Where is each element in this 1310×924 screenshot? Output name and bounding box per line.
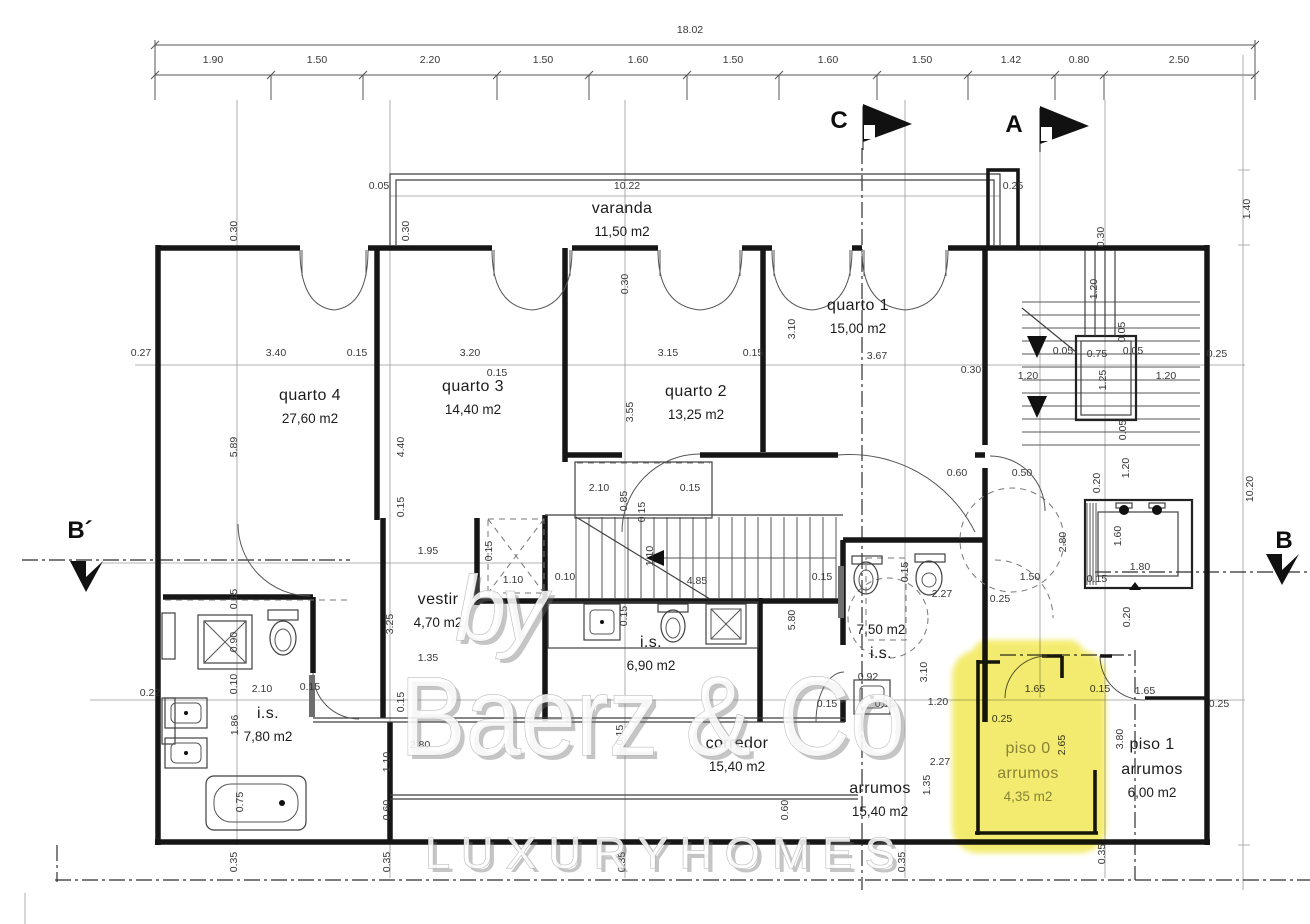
dimension-label: 3.25 [384, 614, 396, 635]
dimension-label: 5.89 [228, 437, 240, 458]
dimension-label: 1.20 [928, 696, 949, 708]
dimension-label: 2.10 [589, 482, 610, 494]
dimension-label: 0.35 [228, 852, 240, 873]
dimension-label: 0.05 [369, 180, 390, 192]
dimension-label: 0.50 [1012, 467, 1033, 479]
dimension-label: 1.10 [381, 752, 393, 773]
dimension-label: 1.20 [1088, 279, 1100, 300]
dimension-label: 4.85 [687, 575, 708, 587]
dimension-label: 0.85 [618, 491, 630, 512]
dimension-label: 0.05 [1116, 322, 1128, 343]
dimension-label: 2.27 [932, 588, 953, 600]
dimension-label: 2.80 [1057, 532, 1069, 553]
dimension-label: 1.10 [644, 546, 656, 567]
section-letter: C [830, 107, 847, 134]
dimension-label: 0.75 [234, 792, 246, 813]
toilet-icon [661, 610, 685, 642]
dimension-label: 1.60 [1112, 526, 1124, 547]
dimension-label: 10.20 [1244, 476, 1256, 502]
dimension-label: 0.15 [395, 497, 407, 518]
dimension-label: 3.40 [266, 347, 287, 359]
room-varanda-name: varanda [592, 200, 653, 217]
dimension-label: 2.27 [930, 756, 951, 768]
dimension-label: 2.20 [420, 54, 441, 66]
dimension-label: 0.30 [1095, 227, 1107, 248]
dimension-label: 18.02 [677, 24, 703, 36]
dimension-label: 5.80 [786, 610, 798, 631]
elevator-roller-icon [1152, 505, 1162, 515]
dimension-label: 1.50 [307, 54, 328, 66]
room-piso-1-arrumos-name: arrumos [1121, 761, 1182, 778]
dimension-label: 1.20 [1156, 370, 1177, 382]
dimension-label: 1.50 [533, 54, 554, 66]
dimension-label: 1.50 [723, 54, 744, 66]
dimension-label: 0.15 [743, 347, 764, 359]
dimension-label: 0.30 [228, 221, 240, 242]
dimension-label: 1.42 [1001, 54, 1022, 66]
section-marker-b-left: B´ [67, 517, 103, 592]
dimension-label: 1.95 [418, 545, 439, 557]
dimension-label: 0.25 [1209, 698, 1230, 710]
watermark-tagline: L U X U R Y H O M E S [425, 829, 895, 878]
dimension-label: 1.60 [818, 54, 839, 66]
dimension-label: 0.60 [947, 467, 968, 479]
dimension-label: 1.65 [1135, 685, 1156, 697]
dimension-label: 0.15 [812, 571, 833, 583]
dimension-label: 1.86 [229, 715, 241, 736]
dimension-label: 0.22 [140, 687, 161, 699]
section-letter: B´ [67, 517, 92, 544]
dimension-label: 4.40 [395, 437, 407, 458]
room-i-s--area: 7,80 m2 [244, 729, 293, 744]
dimension-label: 0.35 [1096, 844, 1108, 865]
dimension-label: 3.20 [460, 347, 481, 359]
room-quarto-4-area: 27,60 m2 [282, 411, 338, 426]
dimension-label: 1.35 [921, 775, 933, 796]
elevator-roller-icon [1119, 505, 1129, 515]
stair-arrow-lower [1027, 396, 1047, 418]
room-quarto-3-name: quarto 3 [442, 378, 504, 395]
dimension-label: 3.55 [624, 402, 636, 423]
balcony-outline [390, 174, 1000, 245]
dimension-label: 0.20 [1121, 607, 1133, 628]
dimension-label: 1.60 [628, 54, 649, 66]
door-leaf [838, 566, 844, 618]
room-piso-1-arrumos-floor: piso 1 [1129, 736, 1174, 753]
dimension-label: 1.50 [1020, 571, 1041, 583]
dimension-label: 0.25 [1003, 180, 1024, 192]
dimension-label: 0.15 [899, 562, 911, 583]
stair-arrow-upper [1027, 336, 1047, 358]
dimension-label: 0.15 [618, 606, 630, 627]
dimension-label: 3.80 [1114, 729, 1126, 750]
dimension-label: 1.80 [1130, 561, 1151, 573]
room-quarto-2-name: quarto 2 [665, 383, 727, 400]
dimension-label: 1.90 [203, 54, 224, 66]
dimension-label: 0.10 [228, 674, 240, 695]
toilet-icon [270, 621, 296, 655]
dimension-label: 0.05 [1123, 345, 1144, 357]
dimension-label: 2.50 [1169, 54, 1190, 66]
room-arrumos-area: 15,40 m2 [852, 804, 908, 819]
dimension-label: 2.10 [252, 683, 273, 695]
room-piso-1-arrumos-area: 6,00 m2 [1128, 785, 1177, 800]
dimension-label: 0.60 [779, 800, 791, 821]
room-quarto-1-name: quarto 1 [827, 297, 889, 314]
watermark: by by Baerz & Co Baerz & Co L U X U R Y … [400, 558, 909, 882]
section-letter: A [1005, 111, 1022, 138]
dimension-label: 10.22 [614, 180, 640, 192]
room-i-s--area: 7,50 m2 [857, 622, 906, 637]
dimension-label: 1.20 [1018, 370, 1039, 382]
highlight-marker [952, 640, 1106, 853]
dimension-label: 0.90 [228, 632, 240, 653]
room-varanda-area: 11,50 m2 [594, 224, 649, 239]
room-quarto-1-area: 15,00 m2 [830, 321, 886, 336]
dimension-label: 1.25 [1097, 370, 1109, 391]
dimension-label: 0.30 [619, 274, 631, 295]
dimension-label: 0.10 [555, 571, 576, 583]
dimension-label: 0.60 [381, 800, 393, 821]
dimension-label: 0.80 [1069, 54, 1090, 66]
floor-plan-page: C A B´ B 18.021.901.502.201.501.601.501.… [0, 0, 1310, 924]
dimension-label: 0.05 [1117, 420, 1129, 441]
room-quarto-2-area: 13,25 m2 [668, 407, 724, 422]
dimension-label: 1.20 [1120, 458, 1132, 479]
watermark-brand: Baerz & Co [400, 654, 905, 779]
dimension-label: 0.30 [961, 364, 982, 376]
dimension-label: 3.10 [786, 319, 798, 340]
dimension-label: 3.10 [918, 662, 930, 683]
section-letter: B [1275, 527, 1292, 554]
dimension-label: 0.15 [636, 502, 648, 523]
watermark-by: by [455, 558, 552, 660]
dimension-label: 0.30 [400, 221, 412, 242]
dimension-label: 3.67 [867, 350, 888, 362]
toilet-tank [268, 610, 298, 620]
dimension-label: 0.27 [131, 347, 152, 359]
section-marker-a: A [1005, 106, 1089, 152]
dimension-label: 0.20 [1091, 473, 1103, 494]
dimension-label: 0.15 [228, 589, 240, 610]
dimension-label: 0.05 [1053, 345, 1074, 357]
room-vestir-name: vestir [418, 591, 459, 608]
dimension-label: 0.25 [1207, 348, 1228, 360]
dimension-label: 0.25 [990, 593, 1011, 605]
room-i-s--name: i.s. [257, 705, 279, 722]
room-i-s--name: i.s. [640, 634, 662, 651]
room-quarto-3-area: 14,40 m2 [445, 402, 501, 417]
section-marker-b-right: B [1266, 527, 1299, 585]
dimension-label: 3.15 [658, 347, 679, 359]
dimension-label: 0.15 [680, 482, 701, 494]
floor-plan-drawing: C A B´ B 18.021.901.502.201.501.601.501.… [0, 0, 1310, 924]
room-quarto-4-name: quarto 4 [279, 387, 341, 404]
dimension-label: 0.15 [300, 681, 321, 693]
dimension-label: 0.15 [1087, 573, 1108, 585]
dimension-label: 1.40 [1241, 199, 1253, 220]
dimension-label: 0.35 [381, 852, 393, 873]
dimension-label: 0.15 [347, 347, 368, 359]
dimension-label: 1.50 [912, 54, 933, 66]
section-marker-c: C [830, 104, 912, 150]
dimension-label: 0.75 [1087, 348, 1108, 360]
